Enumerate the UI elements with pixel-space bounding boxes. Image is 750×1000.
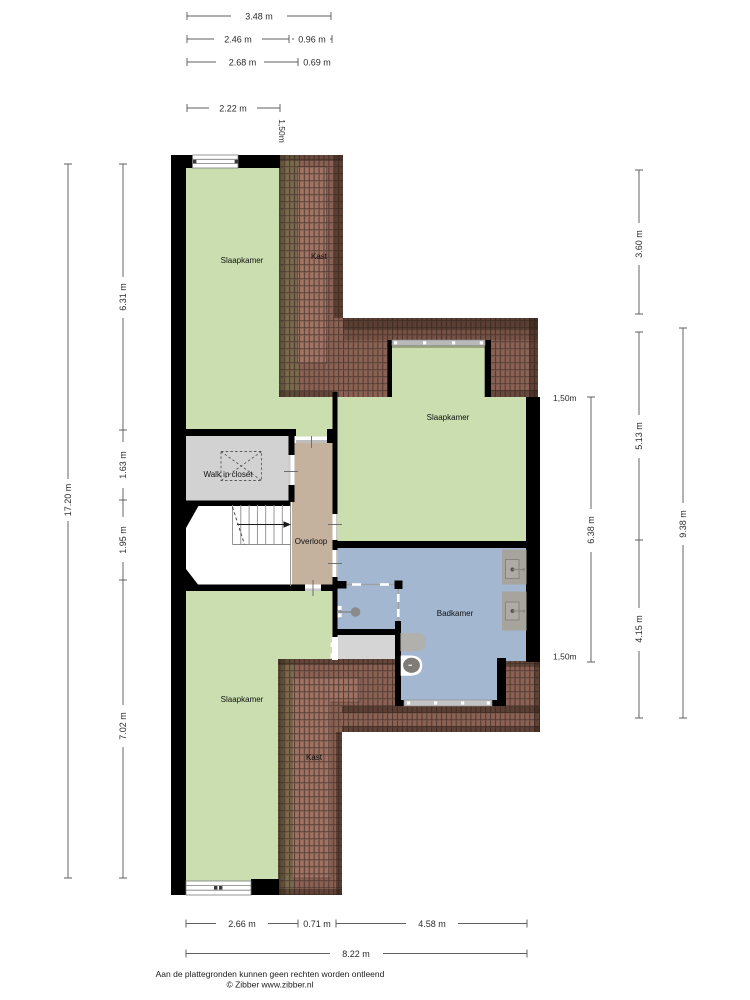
svg-text:6.31 m: 6.31 m [118, 283, 128, 311]
svg-text:1.63 m: 1.63 m [118, 451, 128, 479]
svg-text:2.22 m: 2.22 m [219, 104, 247, 114]
svg-text:Badkamer: Badkamer [437, 609, 474, 618]
svg-text:Overloop: Overloop [295, 537, 328, 546]
svg-text:Kast: Kast [306, 753, 323, 762]
svg-text:0.71 m: 0.71 m [303, 919, 331, 929]
svg-text:3.48 m: 3.48 m [245, 12, 273, 22]
svg-text:Slaapkamer: Slaapkamer [221, 256, 264, 265]
svg-text:1,50m: 1,50m [553, 393, 577, 403]
svg-text:6.38 m: 6.38 m [586, 516, 596, 544]
svg-text:4.15 m: 4.15 m [634, 615, 644, 643]
svg-text:2.68 m: 2.68 m [229, 58, 257, 68]
svg-text:1,50m: 1,50m [277, 119, 287, 143]
svg-text:3.60 m: 3.60 m [634, 230, 644, 258]
svg-text:5.13 m: 5.13 m [634, 422, 644, 450]
svg-text:2.46 m: 2.46 m [224, 35, 252, 45]
svg-text:0.96 m: 0.96 m [298, 35, 326, 45]
svg-text:2.66 m: 2.66 m [228, 919, 256, 929]
svg-text:4.58 m: 4.58 m [418, 919, 446, 929]
svg-text:Slaapkamer: Slaapkamer [427, 413, 470, 422]
svg-text:1.95 m: 1.95 m [118, 526, 128, 554]
svg-text:1,50m: 1,50m [553, 652, 577, 662]
svg-text:7.02 m: 7.02 m [118, 712, 128, 740]
svg-text:8.22 m: 8.22 m [342, 949, 370, 959]
svg-text:Walk in closet: Walk in closet [203, 470, 253, 479]
svg-text:9.38 m: 9.38 m [678, 510, 688, 538]
svg-text:© Zibber www.zibber.nl: © Zibber www.zibber.nl [226, 980, 313, 990]
svg-text:0.69 m: 0.69 m [303, 58, 331, 68]
svg-text:17.20 m: 17.20 m [63, 484, 73, 517]
svg-text:Aan de plattegronden kunnen ge: Aan de plattegronden kunnen geen rechten… [156, 969, 385, 979]
svg-text:Kast: Kast [311, 252, 328, 261]
svg-text:Slaapkamer: Slaapkamer [221, 695, 264, 704]
